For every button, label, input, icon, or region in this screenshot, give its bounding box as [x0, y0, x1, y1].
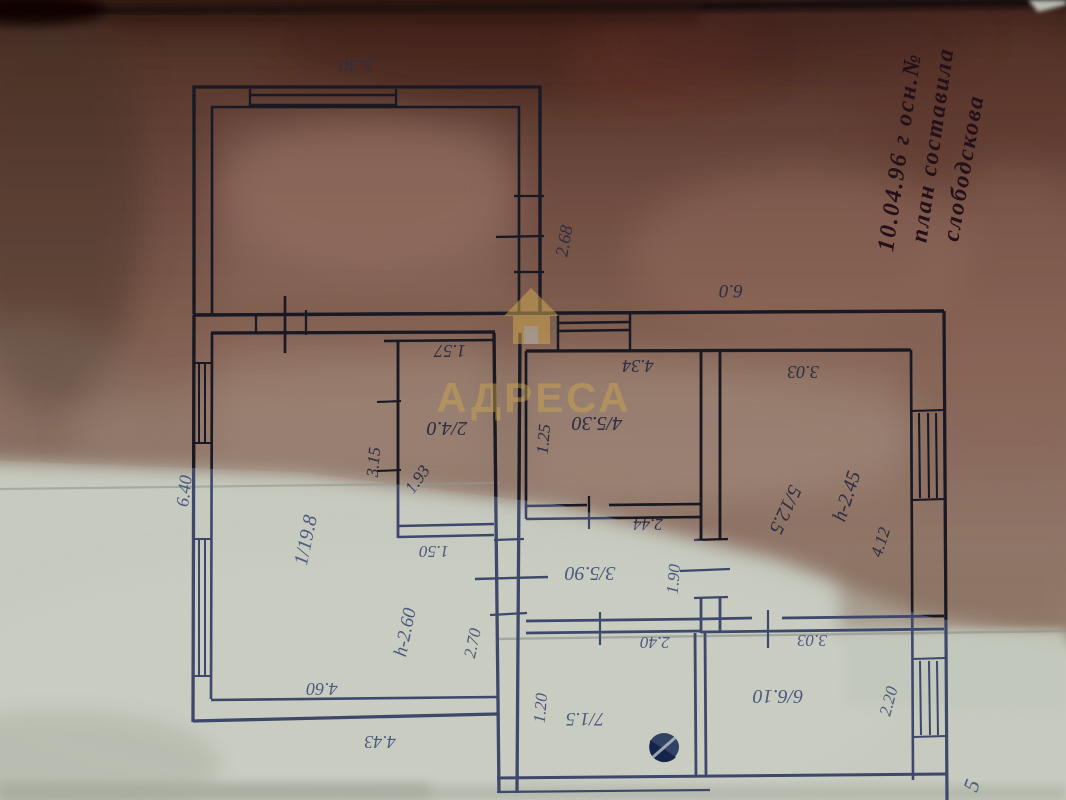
- svg-text:3/5.90: 3/5.90: [565, 562, 617, 584]
- svg-text:1.90: 1.90: [663, 563, 685, 595]
- svg-text:2.40: 2.40: [640, 633, 670, 652]
- svg-text:7/1.5: 7/1.5: [566, 708, 605, 729]
- svg-text:4.60: 4.60: [306, 679, 338, 699]
- svg-text:1.20: 1.20: [530, 692, 552, 724]
- svg-text:6.40: 6.40: [172, 474, 196, 508]
- svg-text:АДРЕСА: АДРЕСА: [436, 374, 631, 421]
- svg-text:6/6.10: 6/6.10: [753, 685, 804, 707]
- svg-text:3.03: 3.03: [797, 631, 828, 650]
- svg-text:4.43: 4.43: [364, 732, 396, 752]
- svg-text:1.50: 1.50: [419, 542, 449, 561]
